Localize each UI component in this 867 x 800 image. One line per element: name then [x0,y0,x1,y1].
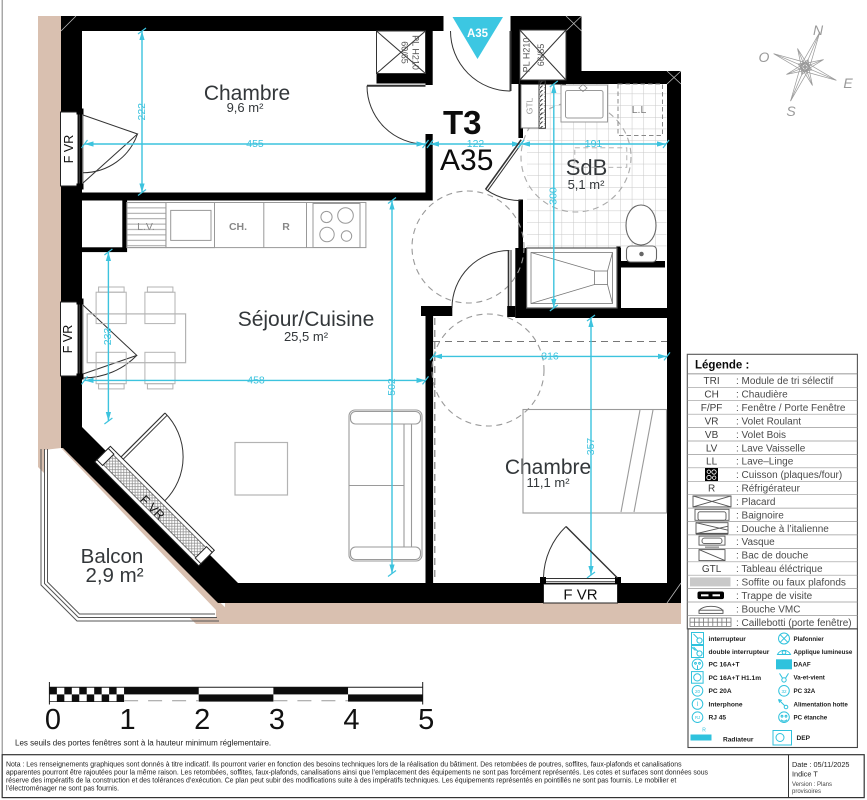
svg-text:: Volet Bois: : Volet Bois [736,430,786,441]
svg-text:5,1 m²: 5,1 m² [568,177,606,192]
svg-text:Version : Plans: Version : Plans [792,782,832,788]
svg-text:: Volet Roulant: : Volet Roulant [736,417,801,428]
svg-text:double interrupteur: double interrupteur [709,649,770,656]
svg-text:Date : 05/11/2025: Date : 05/11/2025 [792,760,849,769]
svg-text:Indice T: Indice T [792,770,818,779]
svg-text:S: S [786,103,796,119]
svg-text:Interphone: Interphone [709,701,743,708]
svg-text:PC étanche: PC étanche [794,715,828,722]
svg-text:RJ 45: RJ 45 [709,715,727,722]
svg-text:5: 5 [418,704,434,736]
svg-text:RJ: RJ [695,715,700,720]
svg-text:VR: VR [705,417,719,428]
svg-text:455: 455 [246,138,264,150]
svg-text:: Caillebotti (porte fenêtre): : Caillebotti (porte fenêtre) [736,618,852,629]
svg-text:: Vasque: : Vasque [736,537,775,548]
svg-text:: Bac de douche: : Bac de douche [736,551,809,562]
svg-text:DAAF: DAAF [794,662,811,669]
svg-text:25,5 m²: 25,5 m² [284,329,329,344]
svg-text:PC 16A+T: PC 16A+T [709,662,740,669]
svg-text:Va-et-vient: Va-et-vient [794,675,825,682]
svg-text:4: 4 [343,704,359,736]
svg-text:CH: CH [704,390,718,401]
svg-text:2: 2 [194,704,210,736]
svg-text:: Module de tri sélectif: : Module de tri sélectif [736,376,833,387]
svg-text:20: 20 [695,689,701,694]
svg-text:: Lave–Linge: : Lave–Linge [736,457,794,468]
svg-text:R: R [702,728,706,734]
svg-text:Les seuils des portes fenêtres: Les seuils des portes fenêtres sont à la… [15,739,271,748]
svg-text:: Tableau éléctrique: : Tableau éléctrique [736,564,823,575]
svg-text:PC 20A: PC 20A [709,688,732,695]
svg-text:T3: T3 [443,104,482,141]
svg-text:E: E [843,75,853,91]
svg-text:réserve des impératifs de la c: réserve des impératifs de la constructio… [6,778,676,785]
svg-text:: Lave Vaisselle: : Lave Vaisselle [736,443,806,454]
svg-text:interrupteur: interrupteur [709,636,747,643]
svg-text:357: 357 [585,438,597,456]
svg-text:LV: LV [706,443,718,454]
svg-text:F/PF: F/PF [701,403,723,414]
svg-text:300: 300 [548,187,560,205]
svg-text:: Baignoire: : Baignoire [736,510,784,521]
svg-text:32: 32 [781,689,787,694]
svg-text:: Réfrigérateur: : Réfrigérateur [736,484,801,495]
svg-text:L.V.: L.V. [137,221,155,233]
svg-text:l’électroménager ne sont pas f: l’électroménager ne sont pas fournis. [6,786,119,793]
svg-text:0: 0 [45,704,61,736]
svg-text:66/65: 66/65 [536,44,546,67]
svg-text:Plafonnier: Plafonnier [794,636,825,643]
svg-text:233: 233 [102,328,114,346]
svg-text:60/65: 60/65 [400,41,410,64]
svg-text:9,6 m²: 9,6 m² [227,100,265,115]
svg-text:Nota : Les renseignements grap: Nota : Les renseignements graphiques son… [6,762,682,769]
svg-text:Applique lumineuse: Applique lumineuse [794,649,853,656]
svg-text:: Soffite ou faux plafonds: : Soffite ou faux plafonds [736,578,846,589]
svg-text:502: 502 [386,378,398,396]
svg-text:11,1 m²: 11,1 m² [526,475,570,490]
svg-text:: Bouche VMC: : Bouche VMC [736,604,800,615]
svg-text:316: 316 [541,350,559,362]
svg-text:Alimentation hotte: Alimentation hotte [794,701,849,708]
svg-text:191: 191 [585,138,603,150]
svg-text:DEP: DEP [797,735,811,742]
svg-text:GTL: GTL [702,564,722,575]
svg-text:2,9 m²: 2,9 m² [85,564,143,587]
svg-text:R: R [282,221,290,233]
svg-text:provisoires: provisoires [792,789,821,795]
svg-text:PC 32A: PC 32A [794,688,816,695]
svg-text:L.L: L.L [632,104,647,116]
svg-text:: Fenêtre / Porte Fenêtre: : Fenêtre / Porte Fenêtre [736,403,846,414]
svg-text:O: O [759,49,770,65]
svg-text:Séjour/Cuisine: Séjour/Cuisine [238,308,375,331]
svg-text:458: 458 [247,374,265,386]
svg-text:: Chaudière: : Chaudière [736,390,788,401]
svg-text:: Douche à l’italienne: : Douche à l’italienne [736,524,829,535]
svg-text:F VR: F VR [62,135,76,163]
svg-text:LL: LL [706,457,718,468]
svg-text:222: 222 [136,103,148,121]
svg-text:VB: VB [705,430,719,441]
svg-text:: Cuisson (plaques/four): : Cuisson (plaques/four) [736,470,842,481]
svg-text:R: R [708,484,715,495]
svg-text:apparentes pourront être rajou: apparentes pourront être rajoutées pour … [6,770,709,777]
svg-text:Radiateur: Radiateur [723,737,754,744]
svg-text:F VR: F VR [61,325,75,353]
svg-text:: Trappe de visite: : Trappe de visite [736,591,813,602]
svg-text:CH.: CH. [229,221,247,233]
svg-text:GTL: GTL [524,97,534,114]
svg-text:PC 16A+T H1.1m: PC 16A+T H1.1m [709,675,762,682]
svg-text:PL H210: PL H210 [411,35,421,70]
svg-text:A35: A35 [467,28,489,40]
svg-text:Légende :: Légende : [695,360,749,372]
svg-text:N: N [813,22,824,38]
svg-text:TRI: TRI [704,376,720,387]
svg-text:: Placard: : Placard [736,497,775,508]
svg-text:3: 3 [269,704,285,736]
svg-text:122: 122 [467,138,485,150]
svg-text:1: 1 [120,704,136,736]
svg-text:PL H210: PL H210 [521,38,531,73]
svg-text:F VR: F VR [563,587,597,604]
